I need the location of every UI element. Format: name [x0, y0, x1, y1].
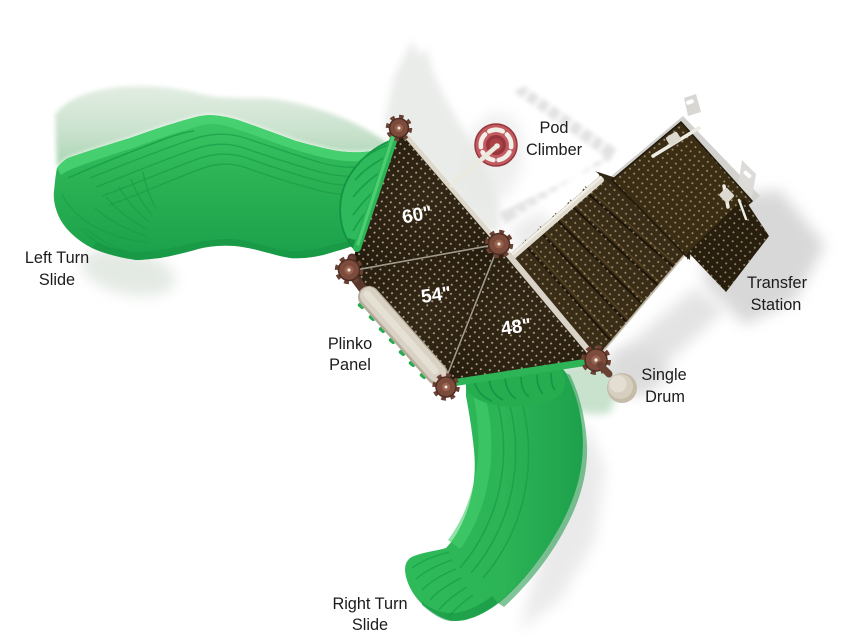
svg-text:Plinko: Plinko — [328, 335, 372, 353]
svg-text:Single: Single — [641, 366, 686, 384]
svg-text:Drum: Drum — [645, 388, 685, 406]
svg-text:Climber: Climber — [526, 141, 583, 159]
svg-text:Slide: Slide — [39, 271, 75, 289]
svg-text:Transfer: Transfer — [747, 274, 808, 292]
svg-text:Right Turn: Right Turn — [332, 595, 407, 613]
svg-text:Left Turn: Left Turn — [25, 249, 89, 267]
svg-text:54": 54" — [420, 283, 453, 308]
svg-text:48": 48" — [500, 315, 533, 340]
svg-text:Pod: Pod — [540, 119, 569, 137]
svg-text:Slide: Slide — [352, 616, 388, 634]
svg-text:Station: Station — [751, 296, 802, 314]
svg-text:Panel: Panel — [329, 356, 371, 374]
